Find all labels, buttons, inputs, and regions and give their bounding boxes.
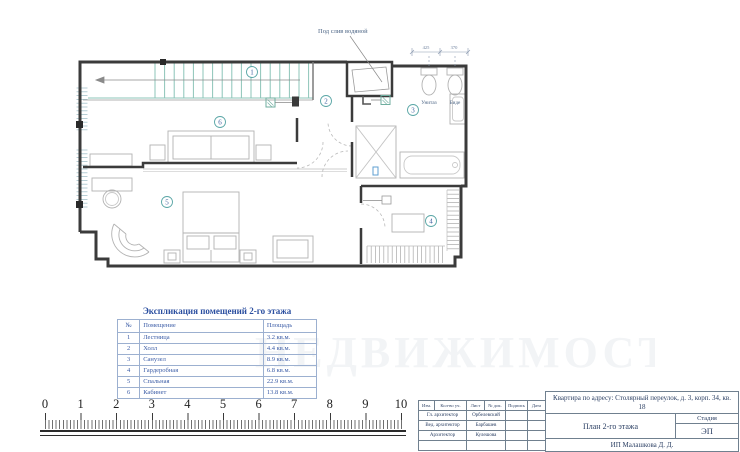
- toilet-tank: [421, 68, 437, 75]
- room-bubble-5: 5: [165, 199, 169, 207]
- bidet-tank: [447, 68, 463, 75]
- furniture: [90, 68, 466, 263]
- legend-header-row: № Помещение Площадь: [118, 320, 317, 333]
- legend-header-area: Площадь: [263, 320, 316, 333]
- dimension-line: [410, 48, 470, 66]
- row-num: 4: [118, 366, 140, 377]
- door-arc-office: [297, 142, 323, 168]
- row-num: 1: [118, 333, 140, 344]
- row-area: 3.2 кв.м.: [263, 333, 316, 344]
- wall-markers: [76, 59, 166, 208]
- legend-table: № Помещение Площадь 1 Лестница 3.2 кв.м.…: [117, 319, 317, 399]
- room-bubble-4: 4: [429, 218, 433, 226]
- title-block-address: Квартира по адресу: Столярный переулок, …: [545, 391, 739, 414]
- dim-label-2: 370: [451, 45, 459, 50]
- drain-note-leader: [350, 36, 382, 82]
- wardrobe-leader: [363, 196, 391, 204]
- drain-note: Под слив водяной: [318, 28, 368, 35]
- dim-label-1: 425: [423, 45, 431, 50]
- row-room: Спальная: [140, 377, 264, 388]
- armchair: [112, 224, 149, 257]
- room-bubble-1: 1: [250, 69, 254, 77]
- wardrobe-rail-bottom-hatch: [367, 246, 445, 263]
- side-table-right: [256, 145, 271, 160]
- room-bubble-3: 3: [411, 107, 415, 115]
- staff-sign-empty: [505, 440, 528, 451]
- door-swings: [297, 122, 385, 228]
- desk-bedroom: [92, 178, 132, 191]
- row-room: Холл: [140, 344, 264, 355]
- row-room: Лестница: [140, 333, 264, 344]
- nightstand-left: [164, 250, 180, 263]
- legend: Экспликация помещений 2-го этажа № Помещ…: [113, 306, 321, 399]
- row-room: Санузел: [140, 355, 264, 366]
- table-row: 2 Холл 4.4 кв.м.: [118, 344, 317, 355]
- pillow-left: [187, 236, 209, 249]
- table-row: 1 Лестница 3.2 кв.м.: [118, 333, 317, 344]
- toilet-label: Унитаз: [421, 100, 436, 106]
- legend-header-num: №: [118, 320, 140, 333]
- row-num: 3: [118, 355, 140, 366]
- stairs-treads: [88, 63, 313, 98]
- room-bubble-6: 6: [218, 119, 222, 127]
- pillow-right: [214, 236, 236, 249]
- scale-ruler-baseline: [40, 430, 406, 436]
- row-num: 2: [118, 344, 140, 355]
- floor-plan-drawing: 425 370 Под слив водяной Унитаз Биде 1 2…: [0, 0, 740, 444]
- desk-office: [90, 154, 132, 166]
- legend-title: Экспликация помещений 2-го этажа: [113, 306, 321, 316]
- room-bubble-2: 2: [324, 98, 328, 106]
- door-arc-bedroom: [322, 151, 348, 177]
- row-area: 4.4 кв.м.: [263, 344, 316, 355]
- drawing-sheet: { "plan": { "note": "Под слив водяной", …: [0, 0, 740, 444]
- ruler-minor-ticks: [45, 420, 402, 429]
- drawing-title: План 2-го этажа: [545, 413, 676, 439]
- row-area: 6.8 кв.м.: [263, 366, 316, 377]
- table-row: 3 Санузел 8.9 кв.м.: [118, 355, 317, 366]
- water-drain-box: [347, 62, 392, 105]
- staff-name-empty: [466, 440, 506, 451]
- scale-ruler-ticks: [45, 413, 402, 429]
- bidet: [448, 75, 462, 95]
- row-room: Гардеробная: [140, 366, 264, 377]
- wardrobe-island: [392, 214, 424, 232]
- nightstand-right: [240, 250, 256, 263]
- wardrobe-rail-right-hatch: [447, 190, 459, 251]
- floor-drain: [373, 167, 378, 175]
- side-table-left: [150, 145, 165, 160]
- scale-ruler-numbers: 0 1 2 3 4 5 6 7 8 9 10: [45, 397, 401, 412]
- row-num: 5: [118, 377, 140, 388]
- stair-arrow: [96, 77, 300, 83]
- table-row: 5 Спальная 22.9 кв.м.: [118, 377, 317, 388]
- company-name: ИП Малашкова Д. Д.: [545, 438, 739, 452]
- toilet: [422, 75, 436, 95]
- left-wall-window-hatch: [77, 88, 88, 207]
- title-block: Квартира по адресу: Столярный переулок, …: [418, 391, 739, 451]
- row-area: 8.9 кв.м.: [263, 355, 316, 366]
- door-arc-wardrobe: [361, 204, 385, 228]
- staff-date-empty: [527, 440, 546, 451]
- stage-value: ЭП: [675, 423, 739, 439]
- door-arc-bathroom: [328, 122, 352, 146]
- row-area: 22.9 кв.м.: [263, 377, 316, 388]
- walls: [80, 62, 466, 266]
- table-row: 4 Гардеробная 6.8 кв.м.: [118, 366, 317, 377]
- bidet-label: Биде: [450, 100, 461, 106]
- staff-role-empty: [418, 440, 467, 451]
- legend-header-room: Помещение: [140, 320, 264, 333]
